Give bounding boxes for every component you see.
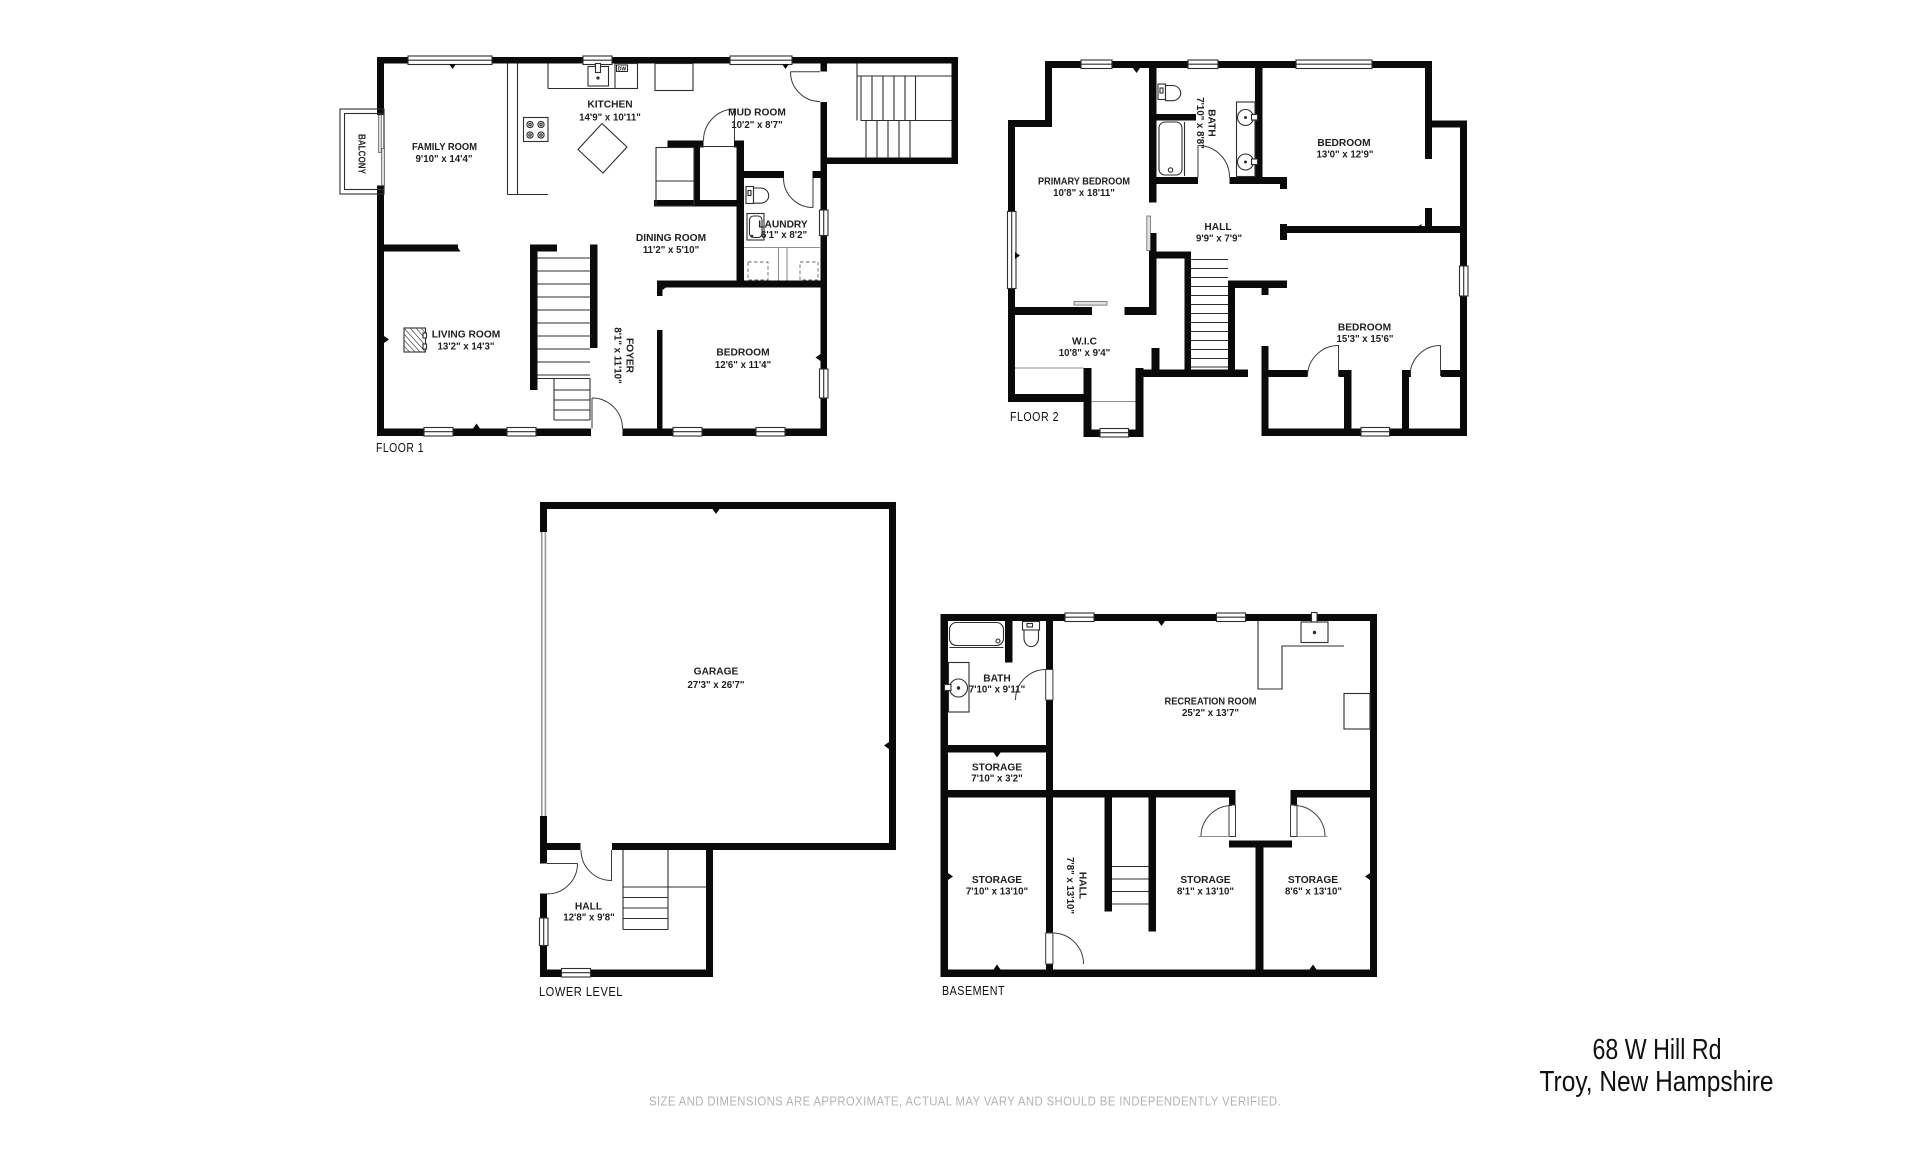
svg-text:9'9" x 7'9": 9'9" x 7'9" xyxy=(1196,234,1242,245)
svg-text:10'8" x 9'4": 10'8" x 9'4" xyxy=(1059,348,1111,359)
svg-text:HALL: HALL xyxy=(1077,872,1088,899)
svg-text:LIVING ROOM: LIVING ROOM xyxy=(432,330,500,341)
svg-text:DINING ROOM: DINING ROOM xyxy=(636,233,706,244)
svg-text:BATH: BATH xyxy=(1206,109,1217,137)
svg-text:LOWER LEVEL: LOWER LEVEL xyxy=(539,984,623,999)
svg-text:FAMILY ROOM: FAMILY ROOM xyxy=(412,142,477,153)
svg-text:STORAGE: STORAGE xyxy=(1180,875,1230,886)
svg-text:BEDROOM: BEDROOM xyxy=(1317,138,1370,149)
svg-text:STORAGE: STORAGE xyxy=(972,875,1022,886)
svg-text:KITCHEN: KITCHEN xyxy=(587,100,632,111)
svg-text:68 W Hill Rd: 68 W Hill Rd xyxy=(1593,1034,1722,1066)
svg-text:RECREATION ROOM: RECREATION ROOM xyxy=(1165,697,1257,708)
svg-text:FOYER: FOYER xyxy=(624,338,635,374)
svg-text:STORAGE: STORAGE xyxy=(972,763,1022,774)
svg-text:FLOOR 1: FLOOR 1 xyxy=(376,440,424,455)
svg-text:DW: DW xyxy=(618,66,627,72)
svg-text:BATH: BATH xyxy=(983,674,1011,685)
svg-text:MUD ROOM: MUD ROOM xyxy=(728,108,786,119)
svg-text:7'8" x 13'10": 7'8" x 13'10" xyxy=(1064,857,1075,914)
svg-text:HALL: HALL xyxy=(575,902,602,913)
svg-text:25'2" x 13'7": 25'2" x 13'7" xyxy=(1182,708,1239,719)
svg-text:BALCONY: BALCONY xyxy=(356,134,367,174)
svg-text:7'10" x 8'8": 7'10" x 8'8" xyxy=(1194,97,1205,149)
svg-text:Troy, New Hampshire: Troy, New Hampshire xyxy=(1540,1066,1774,1098)
svg-text:8'1" x 11'10": 8'1" x 11'10" xyxy=(612,327,623,383)
svg-text:BEDROOM: BEDROOM xyxy=(1338,323,1391,334)
svg-text:PRIMARY BEDROOM: PRIMARY BEDROOM xyxy=(1038,177,1130,188)
svg-text:6'1" x 8'2": 6'1" x 8'2" xyxy=(761,230,807,241)
svg-text:STORAGE: STORAGE xyxy=(1288,875,1338,886)
svg-text:BEDROOM: BEDROOM xyxy=(716,348,769,359)
svg-text:12'6" x 11'4": 12'6" x 11'4" xyxy=(715,360,771,371)
svg-text:10'2" x 8'7": 10'2" x 8'7" xyxy=(731,120,783,131)
svg-text:7'10" x 9'11": 7'10" x 9'11" xyxy=(969,685,1025,696)
svg-text:HALL: HALL xyxy=(1204,222,1231,233)
svg-text:9'10" x 14'4": 9'10" x 14'4" xyxy=(416,154,473,165)
svg-text:7'10" x 13'10": 7'10" x 13'10" xyxy=(966,887,1028,898)
svg-text:SIZE AND DIMENSIONS ARE APPROX: SIZE AND DIMENSIONS ARE APPROXIMATE, ACT… xyxy=(649,1094,1281,1109)
svg-text:LAUNDRY: LAUNDRY xyxy=(758,220,808,231)
svg-text:13'0" x 12'9": 13'0" x 12'9" xyxy=(1317,150,1374,161)
svg-text:11'2" x 5'10": 11'2" x 5'10" xyxy=(643,245,699,256)
svg-text:FLOOR 2: FLOOR 2 xyxy=(1010,409,1059,424)
svg-text:15'3" x 15'6": 15'3" x 15'6" xyxy=(1337,334,1394,345)
svg-text:BASEMENT: BASEMENT xyxy=(942,983,1005,998)
svg-text:8'6" x 13'10": 8'6" x 13'10" xyxy=(1285,887,1342,898)
svg-text:GARAGE: GARAGE xyxy=(694,667,739,678)
svg-text:7'10" x 3'2": 7'10" x 3'2" xyxy=(971,774,1023,785)
svg-text:10'8" x 18'11": 10'8" x 18'11" xyxy=(1053,188,1115,199)
svg-text:14'9" x 10'11": 14'9" x 10'11" xyxy=(579,113,641,124)
svg-text:12'8" x 9'8": 12'8" x 9'8" xyxy=(563,913,615,924)
svg-text:13'2" x 14'3": 13'2" x 14'3" xyxy=(438,342,495,353)
svg-text:27'3" x 26'7": 27'3" x 26'7" xyxy=(688,680,745,691)
svg-text:W.I.C: W.I.C xyxy=(1072,337,1098,348)
svg-text:8'1" x 13'10": 8'1" x 13'10" xyxy=(1177,887,1234,898)
